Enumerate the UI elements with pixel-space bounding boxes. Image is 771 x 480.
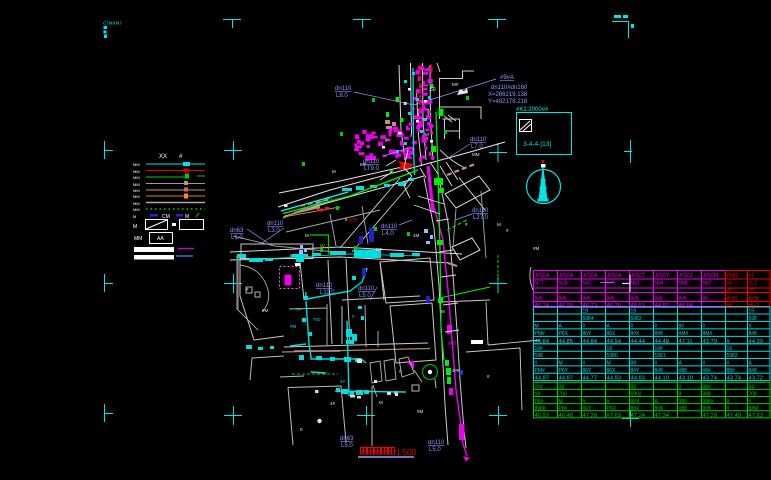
svg-text:#88: #88 [679, 406, 688, 412]
svg-text:19#: 19# [655, 346, 664, 352]
svg-text:#: # [679, 385, 682, 391]
svg-text:3#: 3# [727, 288, 733, 294]
svg-text:MM: MM [133, 169, 140, 174]
svg-text:MM: MM [133, 182, 140, 187]
svg-text:MM: MM [133, 188, 140, 193]
svg-text:M: M [441, 309, 445, 314]
svg-text:3#: 3# [749, 288, 755, 294]
svg-text:#8#: #8# [703, 368, 712, 374]
svg-text:5980: 5980 [607, 353, 618, 359]
svg-text:#6Y: #6Y [583, 406, 593, 412]
svg-text:L3.0: L3.0 [268, 228, 280, 234]
svg-text:470: 470 [349, 218, 358, 224]
svg-text:M: M [379, 400, 383, 405]
svg-text:380: 380 [679, 399, 688, 405]
svg-text:88#: 88# [727, 368, 736, 374]
svg-text:#: # [727, 361, 730, 367]
svg-text:J#S6A: J#S6A [535, 273, 550, 279]
svg-text:M#: M# [376, 247, 383, 252]
svg-text:8#8: 8#8 [655, 368, 664, 374]
svg-text:4#: 4# [330, 401, 336, 406]
svg-text:###: ### [535, 385, 544, 391]
svg-text:L5.0: L5.0 [359, 293, 371, 299]
svg-text:dn110: dn110 [472, 208, 489, 214]
svg-text:88: 88 [559, 385, 565, 391]
svg-text:L27.0: L27.0 [473, 215, 489, 221]
svg-text:Y=482178.218: Y=482178.218 [488, 99, 528, 105]
svg-text:8M#: 8M# [703, 331, 713, 337]
svg-text:M: M [535, 324, 539, 330]
svg-text:L7.0: L7.0 [471, 144, 483, 150]
svg-text:43.74: 43.74 [703, 376, 718, 382]
svg-text:X=266219.138: X=266219.138 [488, 92, 528, 98]
svg-text:44.82: 44.82 [655, 303, 670, 309]
svg-text:598: 598 [535, 353, 544, 359]
svg-text:J#S6M: J#S6M [703, 273, 719, 279]
svg-text:8#X: 8#X [631, 399, 641, 405]
svg-text:86Y: 86Y [583, 368, 593, 374]
svg-text:MM: MM [133, 194, 140, 199]
svg-text:L1.0: L1.0 [231, 235, 243, 241]
svg-text:5981: 5981 [655, 353, 666, 359]
svg-text:#M: #M [533, 246, 540, 251]
svg-text:MM: MM [134, 236, 142, 242]
svg-text:84: 84 [749, 385, 755, 391]
svg-text:8#X: 8#X [631, 331, 641, 337]
svg-text:8#8: 8#8 [703, 406, 712, 412]
svg-text:7#: 7# [296, 307, 302, 312]
svg-text:PM#: PM# [535, 368, 546, 374]
svg-text:C7MXMJ: C7MXMJ [103, 21, 122, 26]
svg-text:4#: 4# [340, 379, 346, 384]
svg-text:dn63: dn63 [230, 228, 244, 234]
svg-text:8#8: 8#8 [749, 331, 758, 337]
svg-text:44.77: 44.77 [583, 376, 598, 382]
svg-text:8988: 8988 [535, 406, 546, 412]
svg-text:#1: #1 [749, 273, 755, 279]
svg-text:8#8: 8#8 [749, 368, 758, 374]
svg-text:47.29: 47.29 [703, 413, 718, 419]
svg-text:4M: 4M [413, 233, 420, 238]
svg-text:708: 708 [749, 392, 758, 398]
svg-text:MM: MM [133, 175, 140, 180]
svg-text:47.49: 47.49 [727, 413, 742, 419]
svg-text:700: 700 [313, 317, 321, 322]
svg-text:1:500: 1:500 [396, 448, 417, 457]
svg-text:44.44: 44.44 [631, 339, 646, 345]
svg-text:M: M [497, 222, 501, 227]
svg-text:44.84: 44.84 [535, 339, 550, 345]
svg-text:47.63: 47.63 [749, 413, 764, 419]
svg-text:47.34: 47.34 [655, 413, 670, 419]
svg-text:2L1: 2L1 [749, 281, 758, 287]
svg-text:19: 19 [583, 309, 589, 315]
svg-text:8#Y: 8#Y [631, 368, 641, 374]
svg-text:8#8: 8#8 [655, 331, 664, 337]
svg-text:19#: 19# [535, 346, 544, 352]
svg-text:#8: #8 [535, 392, 541, 398]
svg-text:88#: 88# [703, 385, 712, 391]
svg-text:8#6: 8#6 [559, 296, 568, 302]
svg-text:86X: 86X [607, 331, 617, 337]
svg-text:47.24: 47.24 [631, 413, 646, 419]
svg-text:P8#: P8# [535, 399, 544, 405]
svg-text:#M: #M [290, 324, 297, 329]
svg-text:P882: P882 [727, 273, 739, 279]
svg-text:43.74: 43.74 [727, 376, 742, 382]
svg-text:dn110: dn110 [428, 440, 445, 446]
svg-text:9#: 9# [703, 296, 709, 302]
svg-text:44.94: 44.94 [607, 339, 622, 345]
svg-text:43.79: 43.79 [703, 339, 718, 345]
svg-text:J#S6J: J#S6J [679, 273, 693, 279]
svg-text:8#: 8# [679, 324, 685, 330]
svg-text:#8: #8 [727, 303, 733, 309]
svg-text:#: # [535, 361, 538, 367]
svg-text:dn110: dn110 [267, 221, 284, 227]
svg-text:9#6: 9#6 [607, 296, 616, 302]
svg-text:L4.0: L4.0 [382, 231, 394, 237]
svg-text:44.84: 44.84 [583, 339, 598, 345]
svg-text:LT9.0: LT9.0 [364, 166, 380, 172]
svg-text:44.83: 44.83 [631, 376, 646, 382]
svg-text:#60: #60 [448, 341, 457, 347]
svg-text:M: M [559, 399, 563, 405]
svg-text:9#6: 9#6 [583, 296, 592, 302]
svg-text:#: # [607, 399, 610, 405]
svg-text:44.48: 44.48 [655, 339, 670, 345]
svg-text:dn110: dn110 [358, 286, 375, 292]
svg-text:L8.0: L8.0 [336, 93, 348, 99]
svg-text:88: 88 [631, 361, 637, 367]
svg-text:L5.0: L5.0 [429, 447, 441, 453]
svg-text:M: M [305, 233, 309, 238]
svg-text:#7.69: #7.69 [607, 413, 622, 419]
svg-text:48.84: 48.84 [679, 303, 694, 309]
svg-text:47.11: 47.11 [679, 339, 693, 345]
svg-text:5982: 5982 [727, 353, 738, 359]
svg-text:9#6: 9#6 [679, 296, 688, 302]
svg-text:9#6: 9#6 [655, 296, 664, 302]
svg-text:#: # [703, 361, 706, 367]
svg-text:19: 19 [631, 309, 637, 315]
svg-text:XX: XX [159, 154, 167, 160]
svg-text:J#S6A: J#S6A [559, 273, 574, 279]
svg-text:46.76: 46.76 [607, 303, 622, 309]
svg-text:5982: 5982 [631, 316, 642, 322]
svg-text:43.10: 43.10 [679, 376, 694, 382]
svg-text:MM: MM [133, 162, 140, 167]
svg-text:#M: #M [262, 308, 269, 313]
svg-text:#: # [583, 399, 586, 405]
svg-text:dn110: dn110 [335, 86, 352, 92]
svg-text:#: # [631, 324, 634, 330]
svg-text:#88: #88 [679, 368, 688, 374]
svg-text:N42: N42 [583, 281, 592, 287]
svg-text:44.87: 44.87 [559, 376, 574, 382]
svg-text:MM: MM [133, 207, 140, 212]
svg-text:dn110: dn110 [470, 137, 487, 143]
svg-text:8: 8 [679, 392, 682, 398]
svg-text:P6Y: P6Y [559, 368, 569, 374]
svg-text:#9#A: #9#A [500, 75, 514, 81]
svg-text:988#: 988# [703, 399, 714, 405]
svg-text:P6X: P6X [607, 406, 617, 412]
svg-text:M: M [425, 132, 429, 137]
svg-text:N28: N28 [559, 281, 568, 287]
svg-text:46.93: 46.93 [559, 303, 574, 309]
svg-text:47.28: 47.28 [583, 413, 598, 419]
svg-text:3-4-4-[13]: 3-4-4-[13] [523, 141, 551, 148]
svg-text:700: 700 [559, 392, 568, 398]
svg-text:46.74: 46.74 [535, 303, 550, 309]
svg-text:9#6: 9#6 [631, 296, 640, 302]
svg-text:N87: N87 [703, 281, 712, 287]
svg-text:8#8: 8#8 [655, 406, 664, 412]
svg-text:M: M [133, 224, 137, 230]
svg-text:dn110: dn110 [316, 283, 333, 289]
svg-text:8#6: 8#6 [535, 296, 544, 302]
svg-text:5984: 5984 [583, 316, 594, 322]
svg-text:P6X: P6X [559, 331, 569, 337]
svg-text:N84: N84 [655, 281, 664, 287]
svg-text:86X: 86X [607, 368, 617, 374]
svg-text:M: M [332, 169, 336, 174]
svg-text:AA: AA [157, 236, 164, 242]
svg-text:19: 19 [749, 309, 755, 315]
svg-text:#: # [727, 406, 730, 412]
svg-text:#: # [703, 324, 706, 330]
svg-text:dn110: dn110 [363, 159, 380, 165]
svg-text:M: M [133, 214, 136, 219]
svg-text:44.87: 44.87 [535, 376, 550, 382]
svg-text:598: 598 [749, 316, 758, 322]
svg-text:44.39: 44.39 [749, 339, 764, 345]
svg-text:N79: N79 [607, 281, 616, 287]
svg-text:L11.0: L11.0 [320, 290, 335, 296]
svg-text:43.72: 43.72 [749, 376, 764, 382]
svg-text:#M: #M [417, 409, 424, 414]
svg-text:86Y: 86Y [583, 331, 593, 337]
svg-text:A#M: A#M [727, 296, 737, 302]
svg-text:P8#: P8# [559, 406, 568, 412]
svg-text:dn110#dn160: dn110#dn160 [491, 85, 528, 91]
svg-text:#: # [583, 324, 586, 330]
svg-text:PM#: PM# [535, 331, 546, 337]
svg-text:46.48: 46.48 [559, 413, 574, 419]
svg-text:J#S6T: J#S6T [631, 273, 645, 279]
svg-text:#M#: #M# [679, 331, 689, 337]
svg-text:#: # [655, 361, 658, 367]
svg-text:4#8: 4#8 [452, 368, 460, 373]
svg-text:M#: M# [452, 82, 459, 87]
svg-text:88: 88 [631, 385, 637, 391]
svg-text:dn110: dn110 [381, 224, 398, 230]
svg-text:MM: MM [472, 152, 480, 157]
svg-text:J#S6A: J#S6A [607, 273, 622, 279]
svg-text:8#M: 8#M [749, 406, 759, 412]
svg-text:50: 50 [430, 87, 436, 93]
svg-text:J#S6A: J#S6A [583, 273, 598, 279]
svg-text:J#S6Y: J#S6Y [655, 273, 670, 279]
svg-text:44.85: 44.85 [559, 339, 574, 345]
svg-text:dn63: dn63 [340, 436, 354, 442]
svg-text:#: # [749, 399, 752, 405]
svg-text:M: M [607, 361, 611, 367]
svg-text:46.93: 46.93 [535, 413, 550, 419]
svg-text:#: # [583, 361, 586, 367]
svg-text:44.10: 44.10 [655, 376, 670, 382]
svg-text:L5.0: L5.0 [341, 443, 353, 449]
svg-text:N86: N86 [679, 281, 688, 287]
svg-text:8: 8 [727, 399, 730, 405]
svg-text:19: 19 [727, 346, 733, 352]
svg-text:988: 988 [703, 392, 712, 398]
svg-text:#4: #4 [727, 281, 733, 287]
svg-text:N77: N77 [535, 281, 544, 287]
svg-text:N81: N81 [631, 281, 640, 287]
svg-text:MM: MM [133, 201, 140, 206]
svg-text:44.93: 44.93 [607, 376, 622, 382]
svg-text:A#M: A#M [749, 296, 759, 302]
svg-text:M: M [559, 361, 563, 367]
svg-text:#: # [655, 324, 658, 330]
svg-text:19: 19 [607, 346, 613, 352]
svg-text:6902: 6902 [631, 392, 642, 398]
svg-text:88X: 88X [631, 406, 641, 412]
